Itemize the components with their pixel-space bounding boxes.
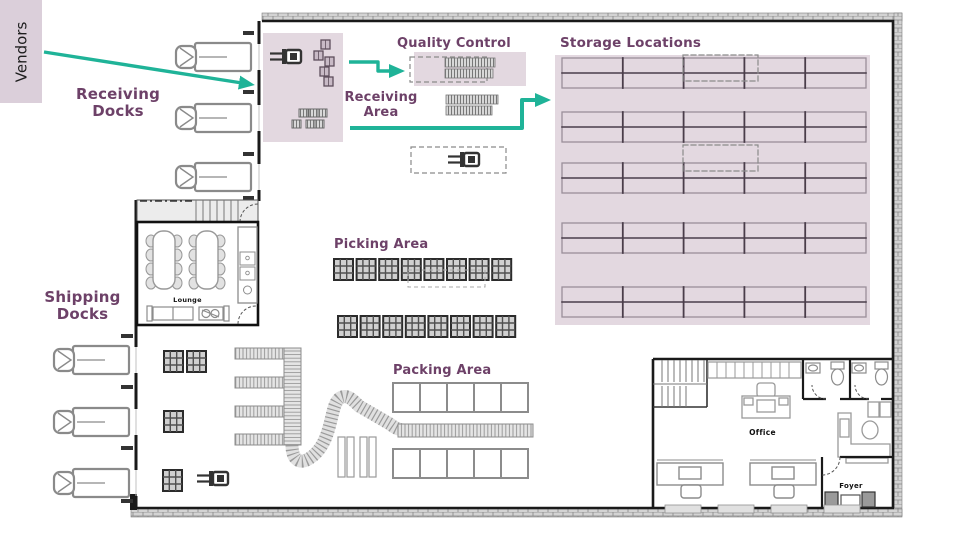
shipping-trucks [54,346,129,497]
highlight-zones [263,33,870,325]
mini-pallet-icon [299,109,308,117]
vendors-box: Vendors [0,0,42,103]
locker-row [708,362,801,378]
truck-icon [54,408,129,436]
conveyor-bar [235,348,284,359]
forklift-icon [197,471,228,486]
pallet-icon [187,351,206,372]
door-swing [822,457,840,475]
toilet-tank [831,362,844,369]
receiving-area-zone [263,33,343,142]
dashed-forklift-bay [411,147,506,173]
mini-pallet-icon [292,120,301,128]
shipping-floor [163,351,228,491]
warehouse-floor-plan: Vendors Receiving Docks Quality Control … [0,0,960,540]
receiving-area-label: Receiving Area [338,91,424,120]
manager-desk [742,383,790,418]
pallet-strip [445,58,495,67]
chair [774,485,794,498]
box-icon [314,51,323,60]
lounge-table [196,231,218,289]
office-label: Office [735,428,790,437]
bathrooms [803,359,893,399]
conveyor-bar [235,434,284,445]
mini-pallet-icon [318,109,327,117]
forklift-icon [448,152,479,167]
picking-area-pallets [334,259,515,337]
pallet-icon [163,470,182,491]
storage-locations-zone [555,55,870,325]
lounge-couch [147,306,229,321]
pallet-strip [445,69,493,78]
shipping-docks-label: Shipping Docks [25,289,140,323]
box-icon [325,57,334,66]
mini-pallet-icon [306,120,315,128]
receiving-docks-label: Receiving Docks [57,86,179,120]
arrow-receiving-to-quality-control [349,62,392,71]
quality-control-label: Quality Control [394,37,514,52]
box-icon [320,67,329,76]
entry-stairs [137,200,258,222]
foyer-label: Foyer [832,482,870,490]
lounge-table [153,231,175,289]
truck-icon [176,104,251,132]
truck-icon [176,163,251,191]
chair [681,485,701,498]
truck-icon [176,43,251,71]
receiving-trucks [176,43,251,191]
toilet [832,369,844,385]
pallet-strip [446,95,498,104]
corner-workstation [838,402,891,463]
lounge-room [137,222,258,325]
foyer-chair [862,492,875,507]
conveyor-column [284,348,301,445]
pallet-icon [164,411,183,432]
office-desk [750,460,816,498]
toilet-tank [875,362,888,369]
pallet-strip [446,106,492,115]
floor-plan-drawing [0,0,960,540]
lounge-label: Lounge [160,296,215,304]
truck-icon [54,469,129,497]
box-icon [324,77,333,86]
door-swing [812,385,826,399]
lounge-counter [238,227,257,303]
conveyor-bar [235,377,284,388]
box-icon [321,40,330,49]
conveyor-bar [235,406,284,417]
truck-icon [54,346,129,374]
right-wall-hatch [894,13,902,516]
chair [862,421,878,439]
door-swing [855,385,869,399]
packing-area-label: Packing Area [393,364,508,379]
office-desk [657,460,723,498]
pallet-icon [164,351,183,372]
toilet [876,369,888,385]
mini-pallet-icon [309,109,318,117]
office-stairs [653,360,707,407]
carts [338,437,376,477]
picking-area-label: Picking Area [334,238,444,253]
storage-locations-label: Storage Locations [560,36,750,51]
vendors-label: Vendors [12,21,30,82]
packing-conveyor [398,424,533,437]
mini-pallet-icon [315,120,324,128]
chair [757,383,775,397]
